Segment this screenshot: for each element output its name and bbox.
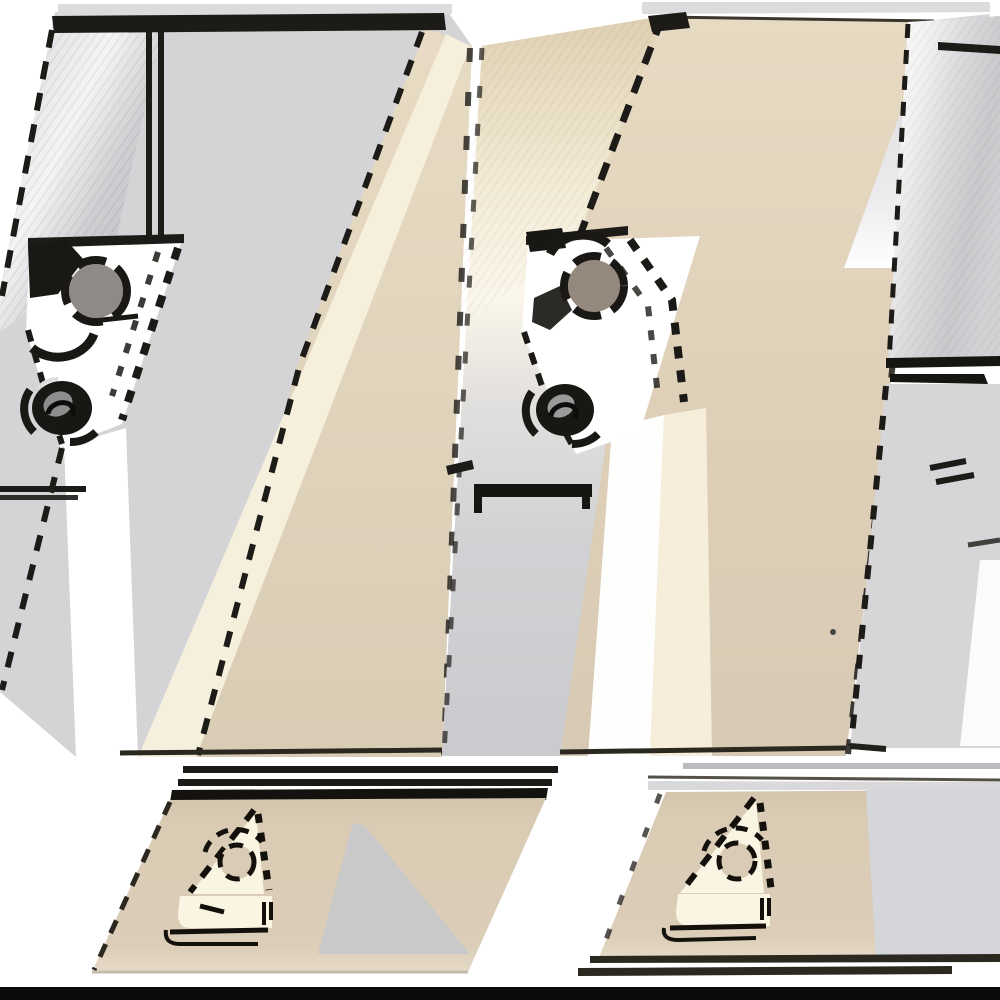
tool3-groove-line-a [886, 356, 1000, 368]
tool2-speck [830, 629, 836, 635]
right-panel-gray-part [866, 790, 1000, 960]
tool1-top-cap-black [52, 13, 446, 33]
tool3-bottom-dash [850, 746, 886, 749]
bottom-black-bar [0, 987, 1000, 1000]
right-shim-bottom-line-a [670, 926, 766, 928]
separator-line-2 [178, 779, 552, 786]
tool1-clamp-screw-icon [69, 264, 123, 318]
tool1-edge-line-b [158, 20, 164, 242]
tool1-bracket-line-a [0, 486, 86, 492]
tool1-bracket-line-b [0, 495, 78, 500]
right-insert-shim [676, 894, 770, 926]
left-panel-body [92, 798, 546, 972]
tool2-clamp-screw-icon [568, 260, 620, 312]
tool2-bracket-bar [474, 484, 592, 497]
tool2-bracket-tick-left [474, 497, 482, 513]
separator-gray-line [683, 763, 1000, 769]
right-panel-gray-strip [648, 781, 1000, 790]
product-image [0, 0, 1000, 1000]
tool1-bottom-edge [120, 750, 442, 753]
separator-line-1 [183, 766, 558, 773]
tooling-scene [0, 0, 1000, 1000]
left-shim-bottom-line-a [170, 930, 268, 932]
tool2-bracket-tick-right [582, 497, 590, 509]
tool2-top-cap-gray [642, 2, 990, 14]
tool-holder-left [0, 4, 472, 757]
tool1-highlight-streak [64, 428, 138, 757]
tool1-edge-line-a [146, 18, 152, 240]
left-insert-shim [178, 896, 272, 928]
